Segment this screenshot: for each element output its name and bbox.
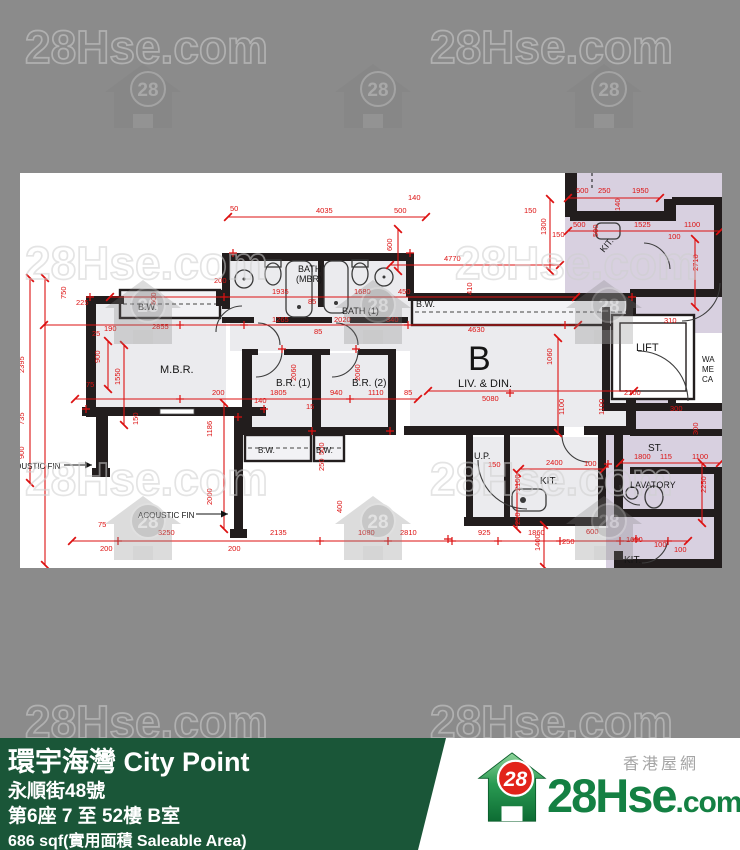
dim-label: 2710 bbox=[691, 254, 700, 271]
watermark-text: 28Hse.com bbox=[25, 20, 268, 74]
dim-label: 50 bbox=[230, 204, 238, 213]
dim-label: 190 bbox=[104, 324, 117, 333]
dim-label: 2100 bbox=[513, 474, 522, 491]
floorplan-image: 5040355001405002501950140500152511001001… bbox=[20, 173, 722, 568]
dim-label: 250 bbox=[562, 537, 575, 546]
dim-label: 1650 bbox=[626, 535, 643, 544]
dim-label: 150 bbox=[488, 460, 501, 469]
house-icon: 28 bbox=[477, 752, 547, 822]
dim-label: 100 bbox=[584, 459, 597, 468]
dim-label: 5080 bbox=[482, 394, 499, 403]
dim-label: 140 bbox=[613, 198, 622, 211]
dim-label: 600 bbox=[385, 238, 394, 251]
room-label: BATH (1) bbox=[342, 306, 379, 316]
watermark-logo-icon: 28 bbox=[103, 62, 183, 130]
dim-label: 200 bbox=[214, 276, 227, 285]
dim-label: 750 bbox=[59, 286, 68, 299]
dim-label: 200 bbox=[212, 388, 225, 397]
page: 28Hse.com28Hse.com28Hse.com28Hse.com28Hs… bbox=[0, 0, 740, 850]
dim-label: 1100 bbox=[692, 452, 708, 461]
dim-label: 3250 bbox=[158, 528, 175, 537]
room-label: ME bbox=[702, 365, 714, 374]
dim-tick bbox=[494, 537, 502, 545]
dim-label: 735 bbox=[20, 412, 26, 425]
dim-label: 2250 bbox=[699, 476, 708, 493]
watermark-logo-icon: 28 bbox=[333, 62, 413, 130]
dim-label: 1525 bbox=[634, 220, 651, 229]
dim-label: 900 bbox=[20, 446, 26, 459]
room-label: B.R. (1) bbox=[276, 378, 310, 389]
footer-bar: 環宇海灣 City Point 永順街48號 第6座 7 至 52樓 B室 68… bbox=[0, 738, 740, 850]
dim-label: 1100 bbox=[597, 399, 606, 415]
room-label: ACOUSTIC FIN bbox=[138, 511, 195, 520]
dim-label: 25 bbox=[92, 329, 100, 338]
watermark-logo-icon: 28 bbox=[564, 62, 644, 130]
dim-label: 2395 bbox=[20, 356, 26, 373]
dim-label: 75 bbox=[86, 380, 94, 389]
dim-label: 1300 bbox=[539, 218, 548, 235]
dim-label: 140 bbox=[254, 396, 267, 405]
dim-tick bbox=[444, 535, 452, 543]
dim-label: 4630 bbox=[468, 325, 485, 334]
dim-label: 150 bbox=[131, 412, 140, 425]
dim-label: 500 bbox=[591, 224, 600, 237]
room-label: KIT. bbox=[540, 476, 557, 487]
room-label: KIT. bbox=[624, 555, 641, 566]
dim-label: 600 bbox=[586, 527, 599, 536]
dim-label: 1265 bbox=[272, 315, 289, 324]
dim-label: 75 bbox=[98, 520, 106, 529]
dim-label: 15 bbox=[306, 402, 314, 411]
room-label: B.W. bbox=[316, 446, 333, 455]
dim-label: 200 bbox=[100, 544, 113, 553]
room-label: ST. bbox=[648, 443, 662, 454]
room-label: B.R. (2) bbox=[352, 378, 386, 389]
watermark-text: 28Hse.com bbox=[430, 20, 673, 74]
dim-label: 2810 bbox=[400, 528, 417, 537]
dim-label: 410 bbox=[465, 282, 474, 295]
dim-label: 1080 bbox=[358, 528, 375, 537]
dim-label: 2855 bbox=[152, 322, 169, 331]
dim-label: 85 bbox=[314, 327, 322, 336]
brand-text: 28Hse.com bbox=[547, 768, 740, 823]
dim-label: 150 bbox=[552, 230, 565, 239]
svg-text:28: 28 bbox=[367, 80, 388, 101]
brand-logo[interactable]: 28 28Hse.com 香港屋網 bbox=[455, 738, 740, 850]
dim-label: 2020 bbox=[334, 315, 351, 324]
room-label: B.W. bbox=[416, 299, 435, 309]
property-title: 環宇海灣 City Point bbox=[8, 740, 250, 779]
dim-label: 300 bbox=[670, 404, 683, 413]
brand-site-name: 28Hse bbox=[547, 769, 676, 822]
dim-label: 300 bbox=[691, 422, 700, 435]
lift-shaft bbox=[612, 315, 694, 399]
room-label: U.P. bbox=[474, 451, 490, 461]
room-label: B.W. bbox=[258, 446, 275, 455]
dim-label: 250 bbox=[317, 458, 326, 471]
dim-label: 450 bbox=[398, 287, 411, 296]
dim-label: 1550 bbox=[113, 368, 122, 385]
dim-label: 2000 bbox=[205, 488, 214, 505]
room-label: B bbox=[468, 340, 491, 378]
dim-label: 940 bbox=[330, 388, 343, 397]
dim-label: 1680 bbox=[354, 287, 371, 296]
room-label: LIFT bbox=[636, 342, 659, 354]
dim-label: 140 bbox=[408, 193, 421, 202]
dim-label: 1950 bbox=[632, 186, 649, 195]
dim-label: 4770 bbox=[444, 254, 461, 263]
dim-label: 2400 bbox=[546, 458, 563, 467]
dim-tick bbox=[316, 537, 324, 545]
dim-label: 2135 bbox=[270, 528, 287, 537]
dim-label: 925 bbox=[478, 528, 491, 537]
dim-tick bbox=[448, 537, 456, 545]
dim-label: 900 bbox=[93, 350, 102, 363]
dim-label: 1400 bbox=[533, 534, 542, 551]
dim-label: 500 bbox=[576, 186, 589, 195]
dim-label: 1100 bbox=[684, 220, 700, 229]
dim-label: 500 bbox=[394, 206, 407, 215]
logo-number: 28 bbox=[503, 768, 528, 791]
dim-label: 100 bbox=[674, 545, 687, 554]
dim-label: 85 bbox=[308, 297, 316, 306]
room-label: BATH bbox=[298, 264, 321, 274]
svg-text:28: 28 bbox=[137, 80, 158, 101]
room-label: CA bbox=[702, 375, 714, 384]
property-address: 永順街48號 bbox=[8, 776, 105, 803]
property-unit: 第6座 7 至 52樓 B室 bbox=[8, 801, 180, 828]
room-label: M.B.R. bbox=[160, 364, 194, 376]
dim-label: 100 bbox=[654, 540, 667, 549]
dim-label: 200 bbox=[228, 544, 241, 553]
dim-label: 500 bbox=[573, 220, 586, 229]
dim-label: 1110 bbox=[368, 388, 384, 397]
brand-tld: .com bbox=[676, 786, 740, 819]
dim-label: 1805 bbox=[270, 388, 287, 397]
dim-tick bbox=[114, 537, 122, 545]
dim-tick bbox=[384, 537, 392, 545]
dim-label: 1060 bbox=[545, 348, 554, 365]
dim-label: 340 bbox=[386, 315, 399, 324]
room-label: LIV. & DIN. bbox=[458, 378, 512, 390]
brand-site-cn: 香港屋網 bbox=[623, 750, 699, 774]
note-leaders bbox=[64, 465, 228, 514]
dim-label: 85 bbox=[404, 388, 412, 397]
dim-label: 100 bbox=[668, 232, 681, 241]
dim-label: 250 bbox=[598, 186, 611, 195]
dim-label: 1186 bbox=[205, 421, 214, 437]
dim-label: 2100 bbox=[624, 388, 641, 397]
svg-text:28: 28 bbox=[598, 80, 619, 101]
room-label: B.W. bbox=[138, 302, 157, 312]
dim-label: 400 bbox=[335, 500, 344, 513]
dim-label: 150 bbox=[524, 206, 537, 215]
room-label: ACOUSTIC FIN bbox=[20, 462, 61, 471]
dim-label: 250 bbox=[513, 512, 522, 525]
room-label: WA bbox=[702, 355, 715, 364]
room-label: LAVATORY bbox=[630, 480, 676, 490]
floorplan-svg: 5040355001405002501950140500152511001001… bbox=[20, 173, 722, 568]
dim-label: 4035 bbox=[316, 206, 333, 215]
dim-label: 225 bbox=[76, 298, 89, 307]
room-label: (MBR) bbox=[296, 274, 322, 284]
dim-label: 310 bbox=[664, 316, 677, 325]
dim-label: 1100 bbox=[557, 399, 566, 415]
property-area: 686 sqf(實用面積 Saleable Area) bbox=[8, 827, 247, 850]
dim-label: 1935 bbox=[272, 287, 289, 296]
